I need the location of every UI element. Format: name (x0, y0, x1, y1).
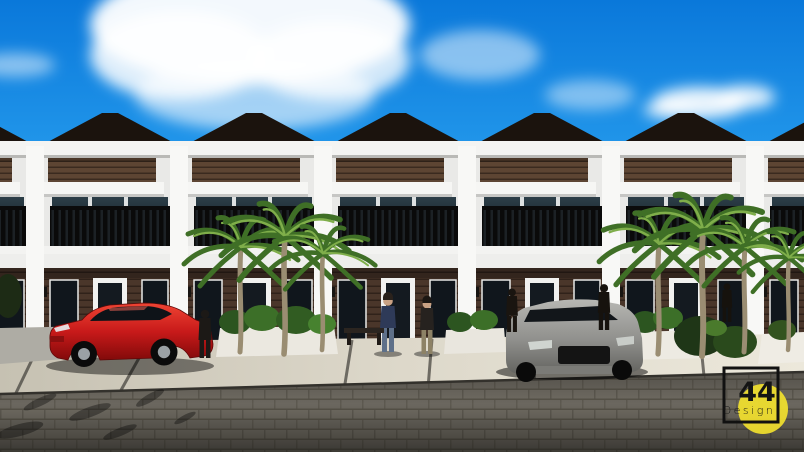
bush-highlight (703, 320, 727, 336)
bench-leg (377, 333, 381, 345)
person-shadow (374, 351, 402, 357)
architectural-render: 44 Design (0, 0, 804, 452)
front-bumper (50, 336, 64, 342)
car-shadow (46, 357, 214, 375)
shrub (244, 305, 280, 331)
shrub (447, 312, 473, 332)
planter-wall (444, 328, 506, 354)
grille (558, 346, 610, 364)
bench-leg (347, 333, 351, 345)
render-canvas: 44 Design (0, 0, 804, 452)
wheel (516, 362, 536, 382)
logo-word: Design (723, 404, 776, 417)
person-torso (420, 308, 434, 330)
person-torso (380, 306, 396, 328)
cloud-small-right (715, 85, 775, 109)
cloud-wisp (545, 80, 635, 110)
wheel-rim (158, 346, 170, 358)
wheel (612, 360, 632, 380)
wheel-rim (78, 348, 90, 360)
person-shadow (414, 351, 440, 357)
person-leg (428, 330, 433, 354)
bench-seat (344, 328, 384, 333)
cloud-wisp (420, 30, 540, 80)
shrub (470, 310, 498, 330)
person-leg (422, 330, 427, 354)
person-leg (389, 328, 394, 352)
shrub (768, 320, 796, 340)
gray-car (496, 299, 648, 382)
